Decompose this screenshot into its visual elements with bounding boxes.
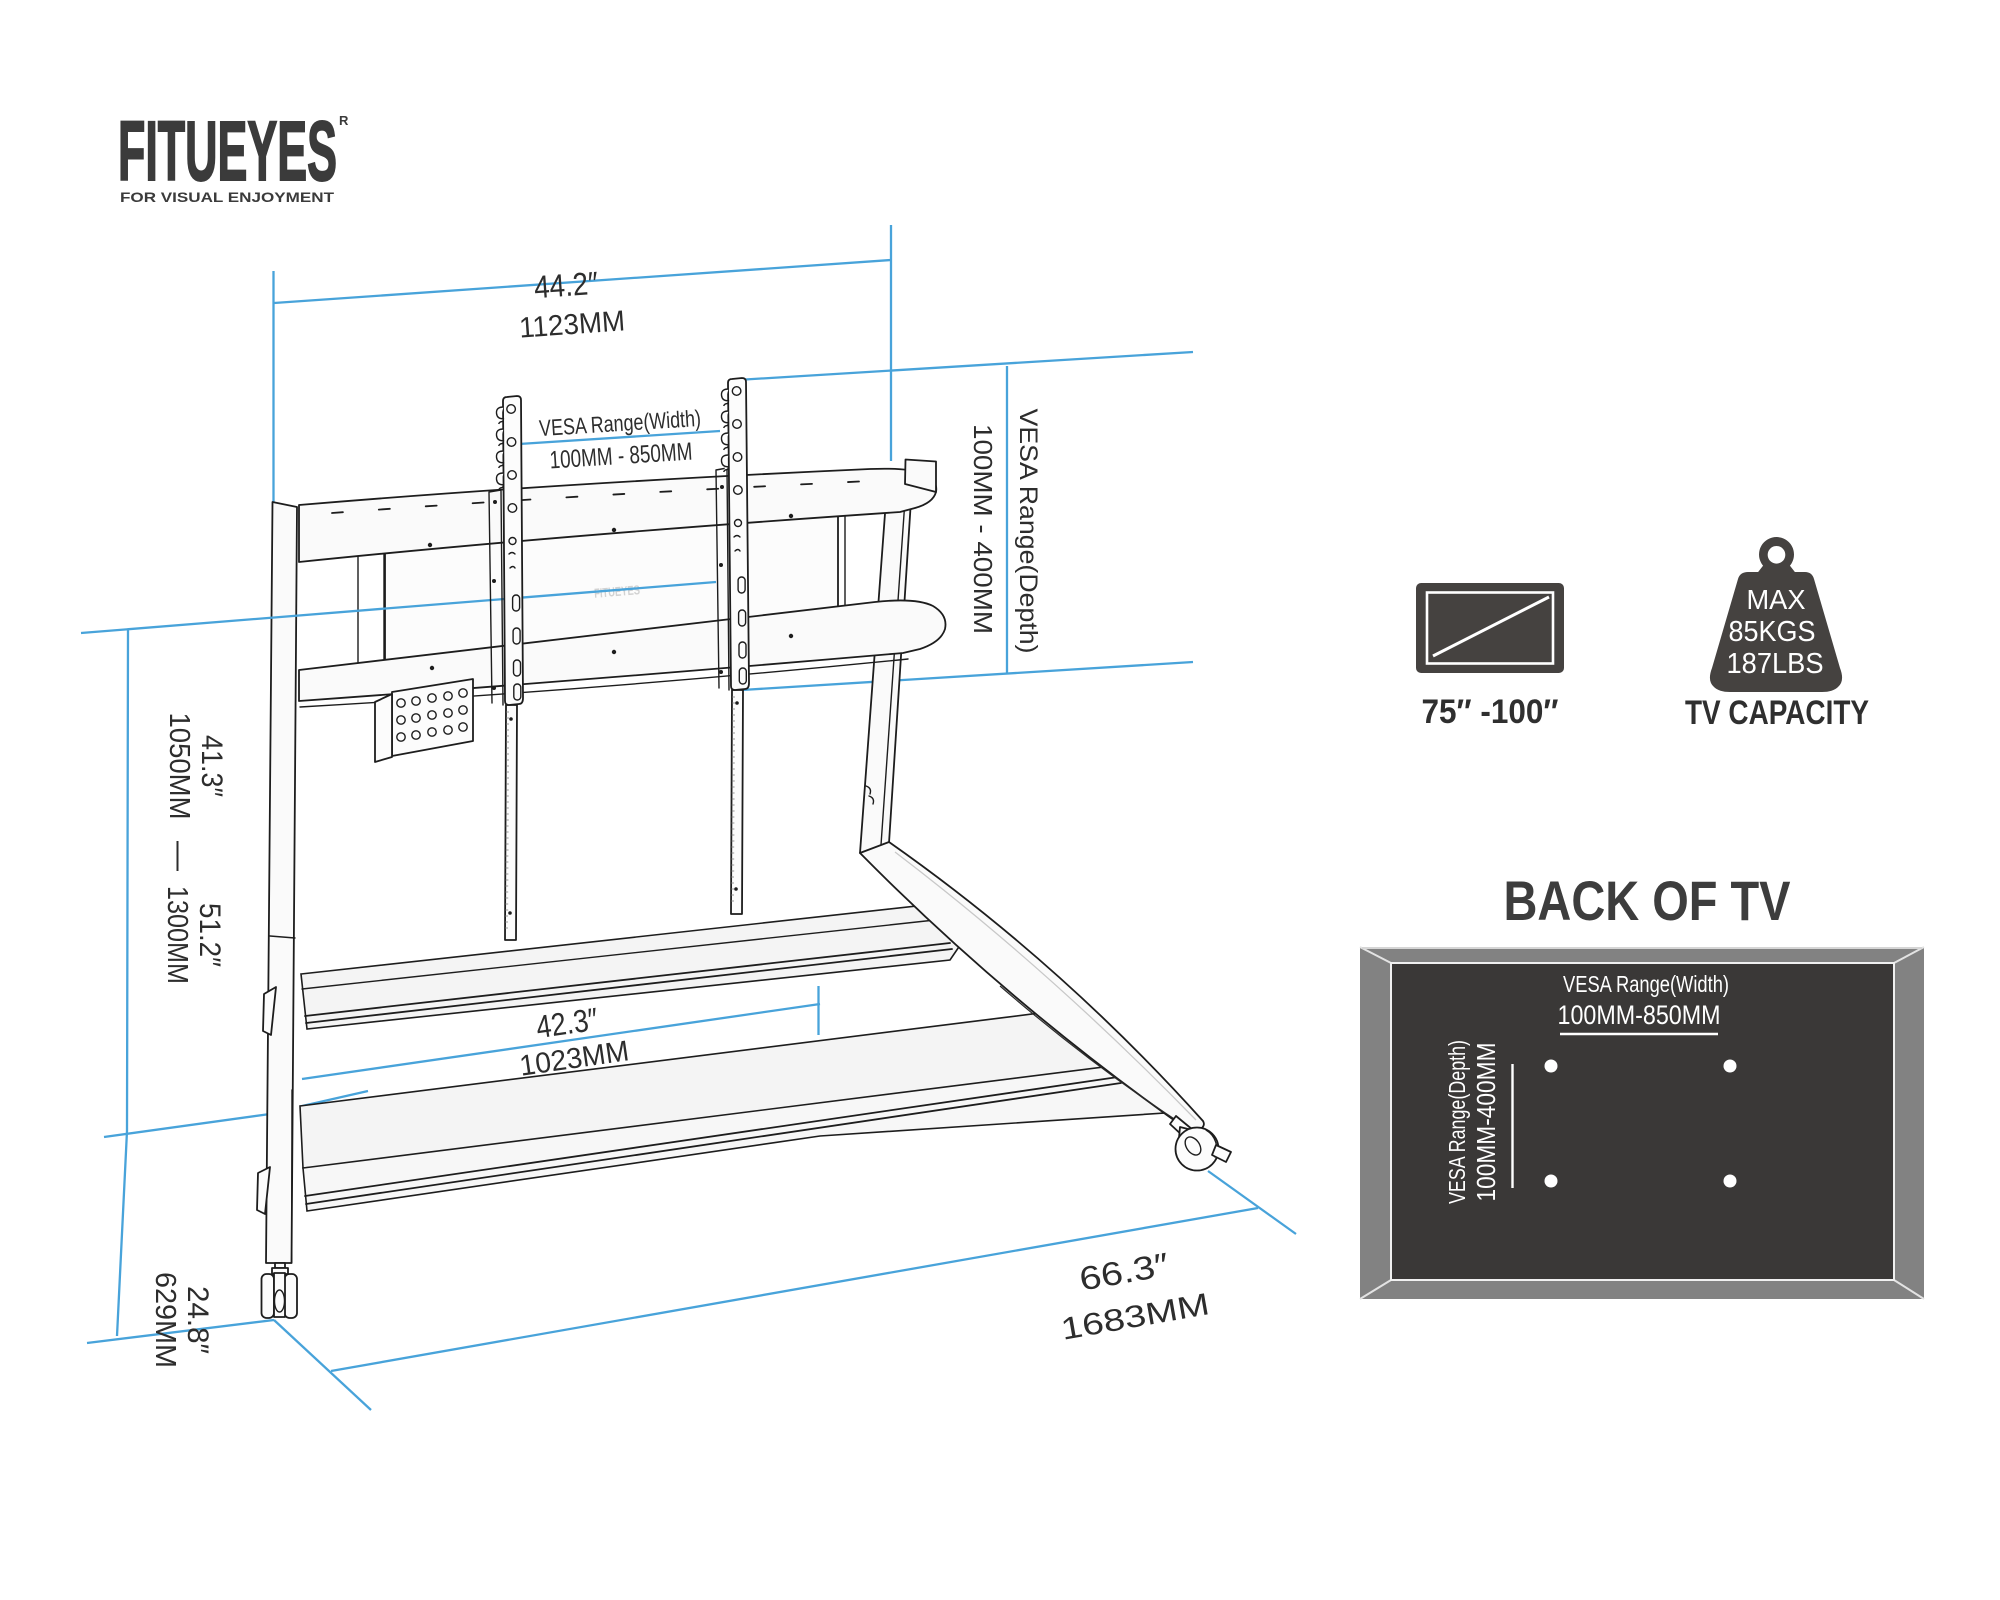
- svg-text:100MM - 400MM: 100MM - 400MM: [968, 424, 998, 634]
- svg-text:—: —: [163, 841, 196, 871]
- svg-text:FITUEYES: FITUEYES: [118, 104, 337, 198]
- svg-text:VESA Range(Depth): VESA Range(Depth): [1014, 409, 1042, 654]
- svg-text:187LBS: 187LBS: [1727, 648, 1824, 680]
- svg-text:VESA Range(Width): VESA Range(Width): [1563, 971, 1729, 997]
- svg-text:R: R: [339, 113, 349, 128]
- svg-text:BACK OF TV: BACK OF TV: [1504, 869, 1791, 932]
- svg-text:FOR VISUAL ENJOYMENT: FOR VISUAL ENJOYMENT: [120, 189, 335, 205]
- svg-text:100MM-850MM: 100MM-850MM: [1558, 1000, 1721, 1030]
- svg-text:629MM: 629MM: [149, 1272, 181, 1368]
- svg-text:75″ -100″: 75″ -100″: [1422, 693, 1559, 731]
- svg-text:41.3″: 41.3″: [195, 735, 228, 797]
- svg-text:VESA Range(Depth): VESA Range(Depth): [1444, 1040, 1470, 1204]
- svg-text:85KGS: 85KGS: [1729, 616, 1816, 648]
- svg-text:TV CAPACITY: TV CAPACITY: [1685, 694, 1869, 732]
- svg-text:24.8″: 24.8″: [181, 1286, 214, 1354]
- svg-text:1050MM: 1050MM: [163, 713, 195, 820]
- svg-text:MAX: MAX: [1747, 584, 1806, 615]
- svg-text:100MM-400MM: 100MM-400MM: [1471, 1043, 1501, 1202]
- svg-text:51.2″: 51.2″: [193, 903, 226, 967]
- svg-text:1300MM: 1300MM: [161, 886, 193, 984]
- svg-text:44.2″: 44.2″: [533, 265, 599, 305]
